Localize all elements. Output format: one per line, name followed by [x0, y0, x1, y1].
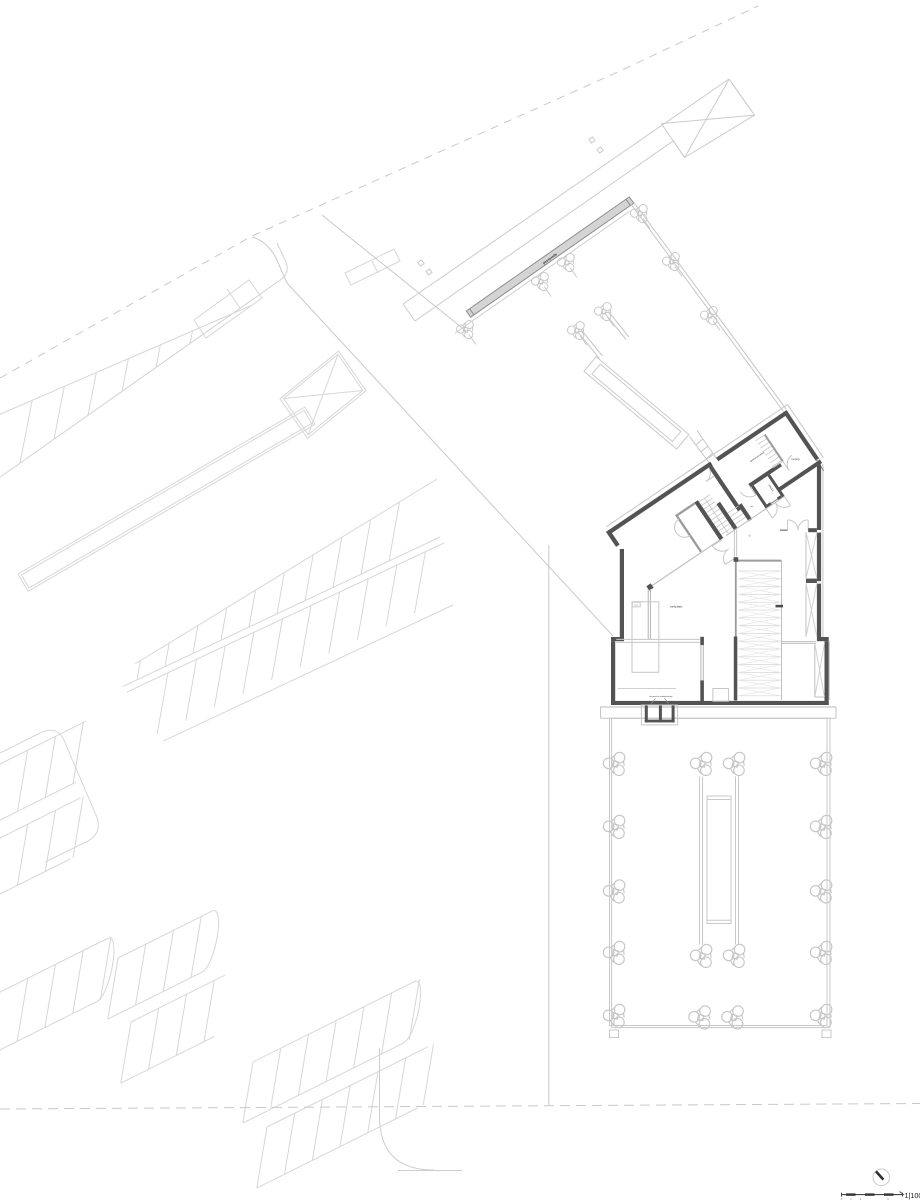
- svg-text:kast: kast: [635, 604, 639, 607]
- svg-text:werkplaats: werkplaats: [670, 604, 683, 608]
- svg-text:1|100: 1|100: [905, 1191, 920, 1200]
- svg-text:berging: berging: [792, 458, 801, 461]
- svg-text:thermische onderbreking: thermische onderbreking: [649, 695, 673, 698]
